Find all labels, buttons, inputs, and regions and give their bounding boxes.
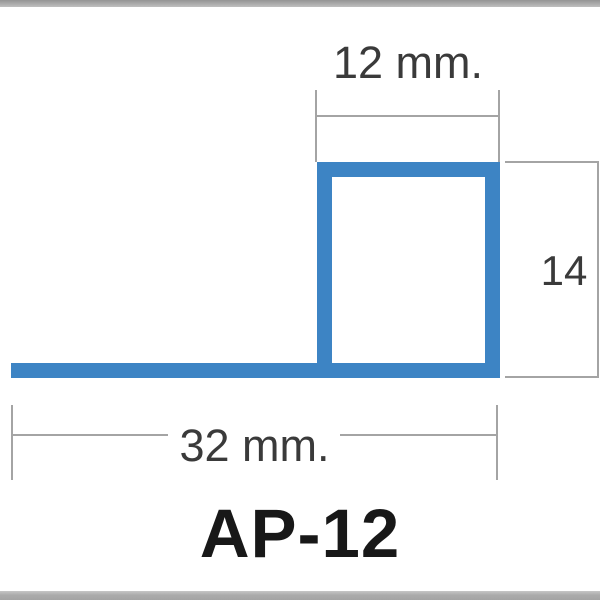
dimension-label-top-width: 12 mm. <box>316 40 500 86</box>
dimension-label-right-height: 14 <box>534 248 594 294</box>
dimension-extension-line-top-right <box>498 90 500 162</box>
dimension-extension-line-right-bottom <box>505 376 598 378</box>
dimension-extension-line-bottom-left <box>11 405 13 480</box>
dimension-line-right-height <box>597 161 599 378</box>
profile-square-channel <box>317 162 500 378</box>
dimension-extension-line-bottom-right <box>496 405 498 480</box>
dimension-label-bottom-width: 32 mm. <box>11 423 498 469</box>
dimension-extension-line-right-top <box>505 161 598 163</box>
dimension-extension-line-top-left <box>315 90 317 162</box>
product-code-title: AP-12 <box>0 503 600 565</box>
dimension-line-top-width <box>315 115 500 117</box>
profile-diagram: 12 mm. 14 32 mm. AP-12 <box>0 0 600 600</box>
top-frame-bar <box>0 0 600 7</box>
dimension-line-bottom-width-right-segment <box>340 434 498 436</box>
bottom-frame-bar <box>0 591 600 600</box>
dimension-line-bottom-width-left-segment <box>11 434 168 436</box>
